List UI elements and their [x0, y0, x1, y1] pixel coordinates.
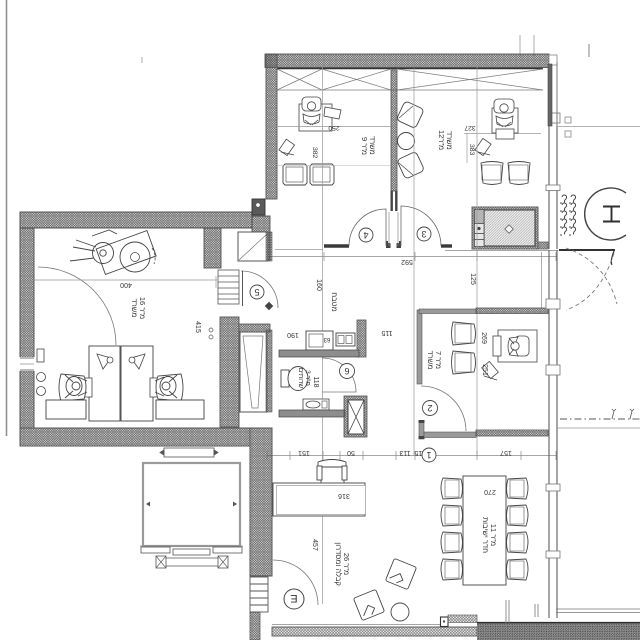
svg-text:250: 250 [328, 124, 340, 131]
svg-text:125: 125 [469, 273, 476, 285]
svg-text:457: 457 [311, 539, 318, 551]
svg-text:383: 383 [468, 144, 475, 156]
svg-text:7 מ"ר: 7 מ"ר [434, 351, 443, 369]
svg-text:160: 160 [315, 279, 322, 291]
svg-text:קבלה ומסדרון: קבלה ומסדרון [334, 542, 343, 586]
svg-text:26 מ"ר: 26 מ"ר [342, 553, 351, 575]
svg-text:327: 327 [464, 124, 476, 131]
svg-text:592: 592 [401, 258, 413, 265]
svg-text:3 מ"ר: 3 מ"ר [304, 370, 311, 386]
svg-text:415: 415 [194, 321, 201, 333]
svg-text:9 מ"ר: 9 מ"ר [360, 137, 369, 155]
svg-text:4: 4 [363, 230, 368, 240]
svg-text:382: 382 [311, 147, 318, 159]
svg-text:11 מ"ר: 11 מ"ר [489, 524, 498, 546]
svg-text:190: 190 [287, 331, 299, 338]
svg-text:מטבח: מטבח [330, 292, 339, 311]
svg-text:משרד: משרד [130, 299, 139, 318]
svg-text:269: 269 [480, 332, 487, 344]
svg-text:113: 113 [399, 449, 410, 456]
svg-text:118: 118 [312, 376, 319, 387]
svg-text:3: 3 [421, 229, 426, 239]
svg-text:E: E [290, 592, 297, 604]
svg-text:151: 151 [298, 449, 310, 456]
svg-text:400: 400 [120, 281, 132, 288]
svg-text:115: 115 [381, 329, 392, 336]
svg-text:50: 50 [347, 449, 355, 456]
svg-text:1: 1 [426, 450, 431, 460]
svg-text:חדר ישיבות: חדר ישיבות [481, 517, 490, 553]
svg-text:שרותים: שרותים [297, 368, 304, 389]
svg-text:16 מ"ר: 16 מ"ר [138, 297, 147, 319]
svg-text:2: 2 [427, 403, 432, 413]
svg-text:251: 251 [481, 364, 488, 376]
svg-text:63: 63 [323, 336, 330, 342]
svg-text:6: 6 [344, 366, 349, 376]
svg-text:5: 5 [254, 287, 259, 297]
svg-text:316: 316 [338, 492, 350, 499]
svg-text:12מ"ר: 12מ"ר [437, 130, 446, 150]
svg-text:270: 270 [484, 488, 496, 495]
svg-text:157: 157 [500, 449, 512, 456]
svg-text:משרד: משרד [426, 351, 435, 370]
